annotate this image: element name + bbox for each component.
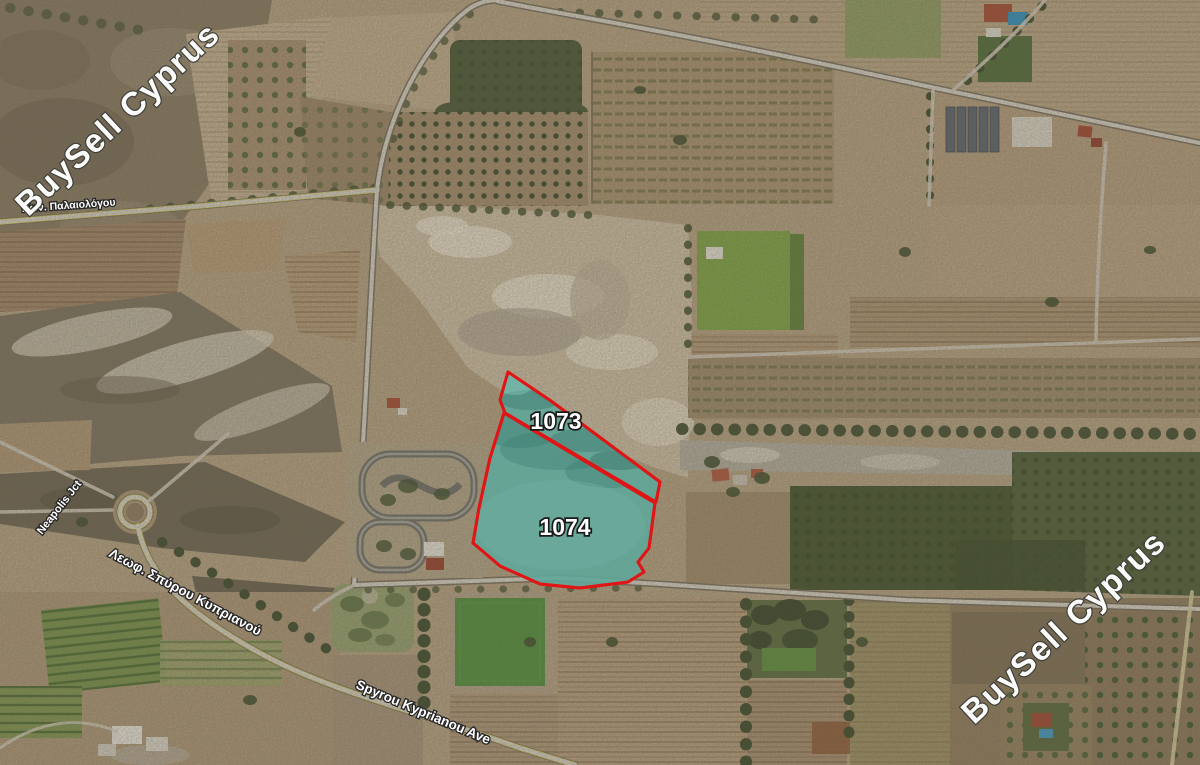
plot-label-1074: 1074 <box>539 514 590 540</box>
map-viewport: Κων. Παλαιολόγου Neapolis Jct Λεωφ. Σπύρ… <box>0 0 1200 765</box>
map-canvas[interactable]: Κων. Παλαιολόγου Neapolis Jct Λεωφ. Σπύρ… <box>0 0 1200 765</box>
plot-label-1073: 1073 <box>530 408 581 434</box>
